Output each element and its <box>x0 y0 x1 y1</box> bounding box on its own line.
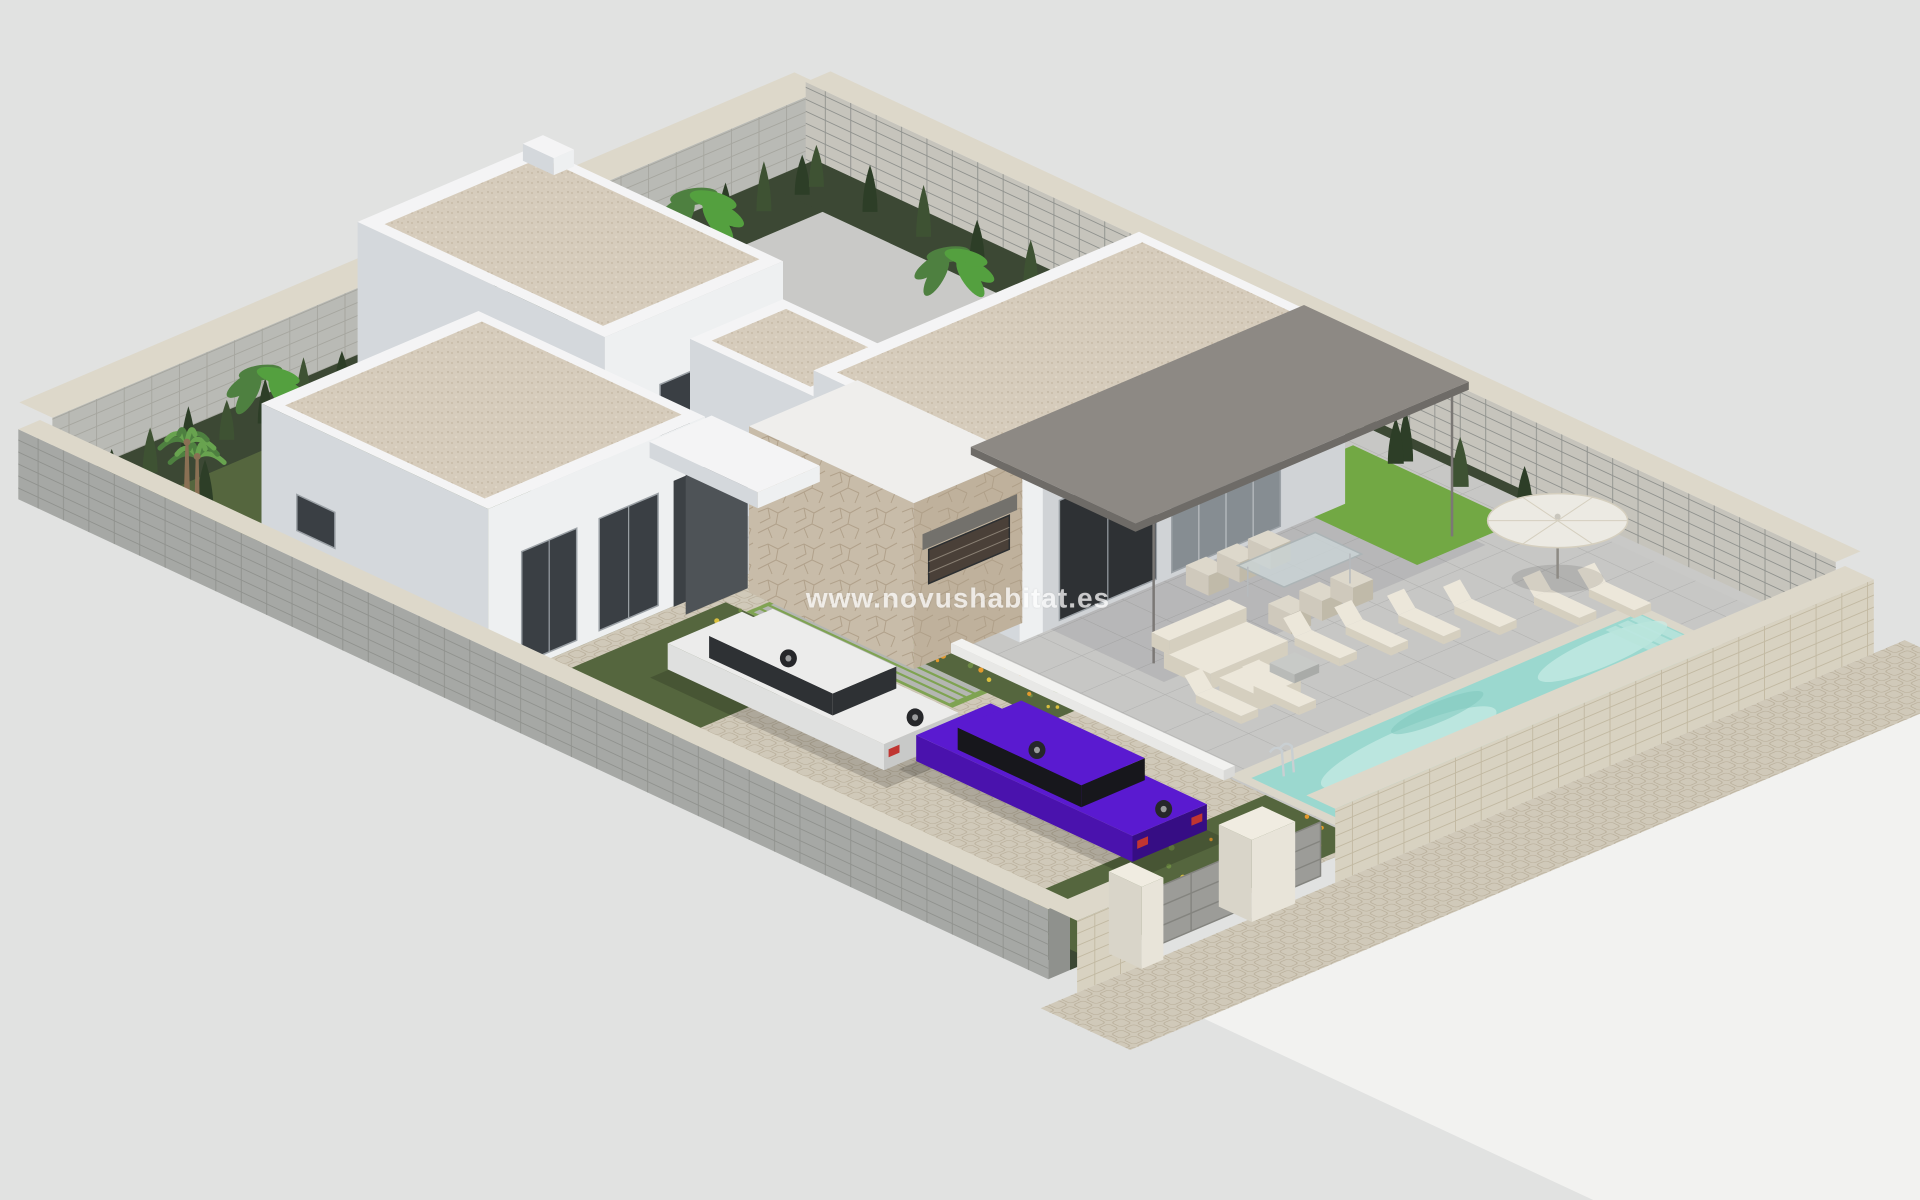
gate-pillar-b <box>1219 806 1295 922</box>
window-left-villa <box>522 528 577 663</box>
watermark-text: www.novushabitat.es <box>806 582 1110 614</box>
gate-pillar-a <box>1109 862 1164 969</box>
render-canvas: www.novushabitat.es <box>0 0 1920 1200</box>
window-left-villa <box>599 494 658 631</box>
